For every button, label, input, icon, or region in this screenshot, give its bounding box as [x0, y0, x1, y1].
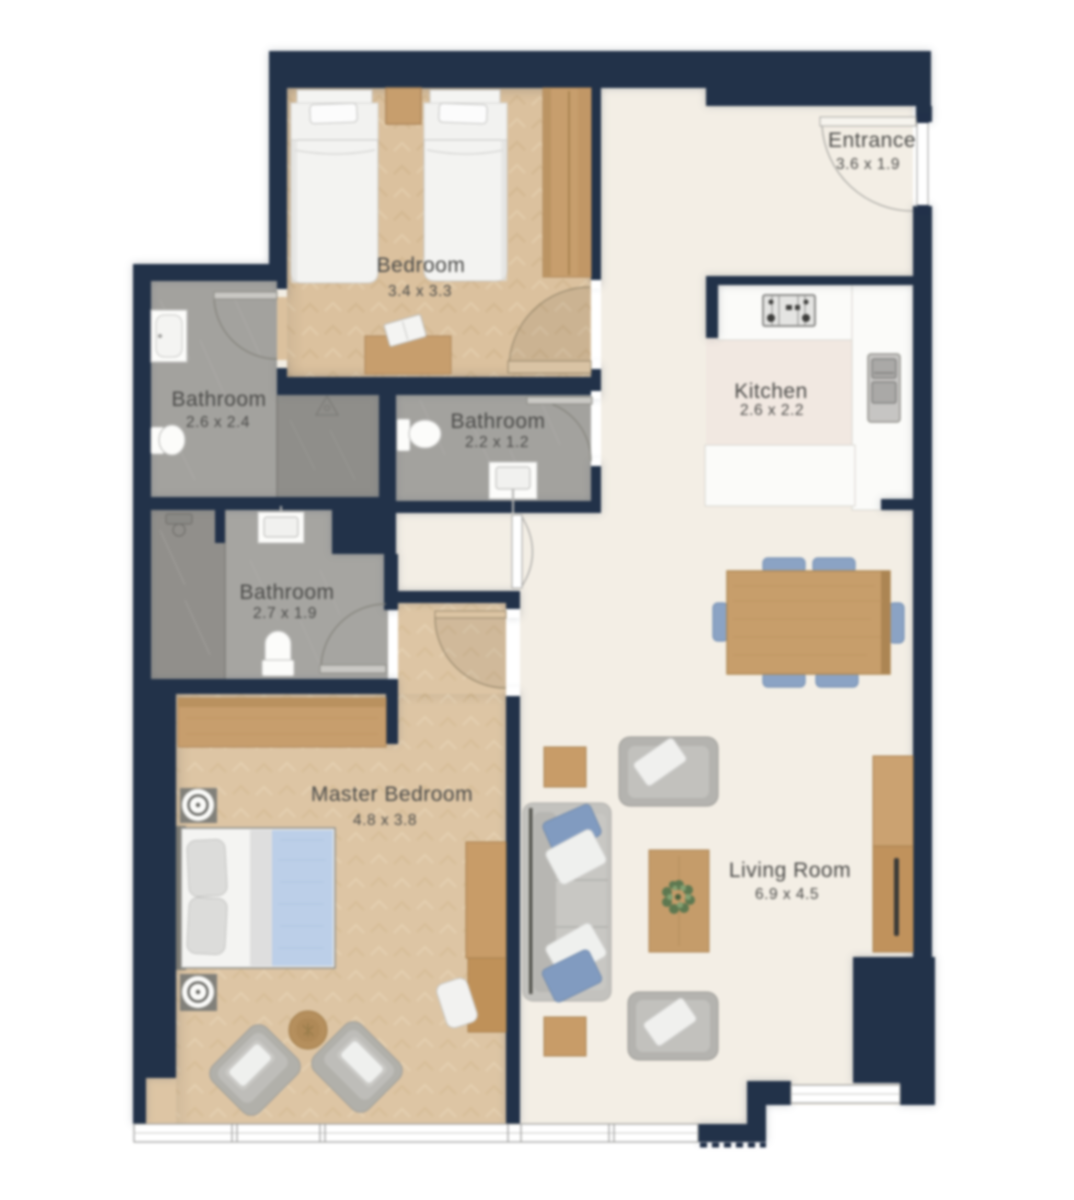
svg-text:2.7 x 1.9: 2.7 x 1.9 — [253, 605, 317, 622]
svg-text:4.8 x 3.8: 4.8 x 3.8 — [353, 812, 417, 829]
svg-text:Bedroom: Bedroom — [377, 254, 466, 277]
svg-text:3.6 x 1.9: 3.6 x 1.9 — [836, 156, 900, 173]
svg-text:6.9 x 4.5: 6.9 x 4.5 — [755, 886, 819, 903]
svg-text:Living Room: Living Room — [729, 859, 851, 882]
svg-text:Bathroom: Bathroom — [450, 410, 545, 433]
svg-text:2.6 x 2.2: 2.6 x 2.2 — [740, 402, 804, 419]
svg-text:3.4 x 3.3: 3.4 x 3.3 — [388, 283, 452, 300]
svg-text:Bathroom: Bathroom — [171, 388, 266, 411]
svg-text:Master Bedroom: Master Bedroom — [311, 783, 473, 806]
svg-text:Entrance: Entrance — [828, 129, 916, 152]
svg-text:Kitchen: Kitchen — [734, 380, 808, 403]
svg-text:2.6 x 2.4: 2.6 x 2.4 — [186, 414, 250, 431]
svg-text:2.2 x 1.2: 2.2 x 1.2 — [465, 434, 529, 451]
svg-text:Bathroom: Bathroom — [239, 581, 334, 604]
